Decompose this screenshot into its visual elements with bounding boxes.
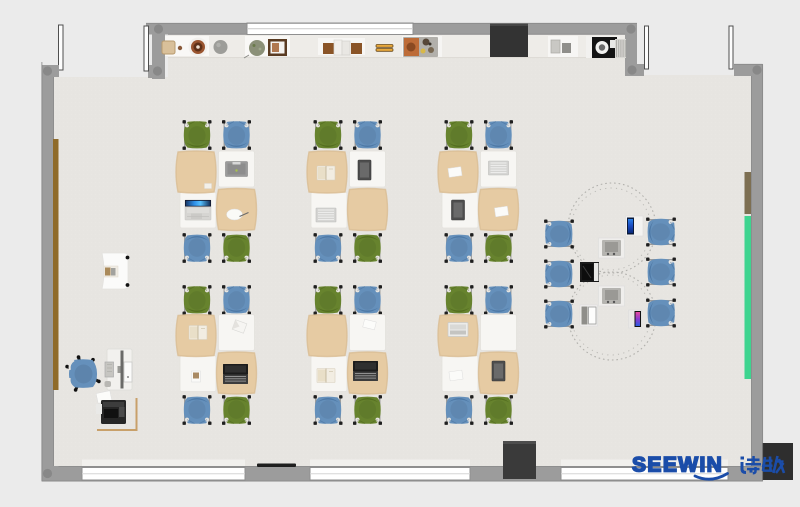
svg-text:SEEWIN: SEEWIN: [632, 454, 723, 477]
